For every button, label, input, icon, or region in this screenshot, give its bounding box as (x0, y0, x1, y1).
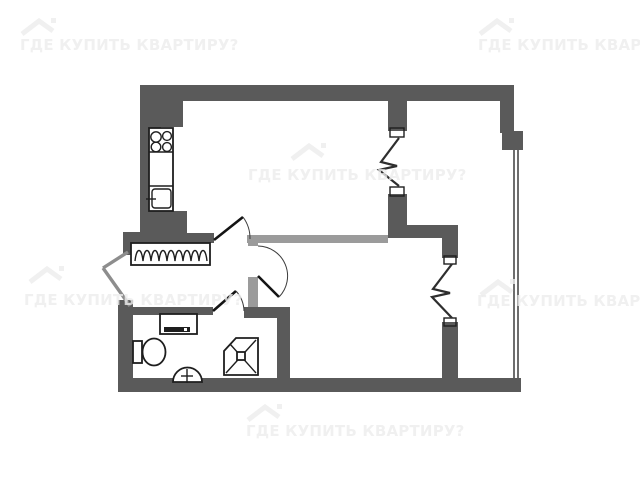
toilet-tank (133, 341, 142, 363)
toilet-icon (133, 339, 166, 366)
coat-rack-icon (131, 243, 210, 265)
accordion-door-icon (432, 264, 452, 318)
floorplan-canvas: ГДЕ КУПИТЬ КВАРТИРУ? ГДЕ КУПИТЬ КВАРТИРУ… (0, 0, 640, 480)
roof-logo-icon (290, 141, 328, 163)
door-leaf (258, 276, 279, 297)
washbasin-icon (173, 368, 202, 384)
wall-segment (118, 300, 133, 392)
washing-machine-icon (160, 314, 197, 334)
shower-cabin-icon (224, 338, 258, 375)
kitchen-door-swing (214, 217, 250, 240)
roof-logo-icon (478, 16, 516, 38)
wall-segment (140, 211, 187, 243)
balcony-accordion-door (432, 256, 456, 326)
toilet-bowl (143, 339, 166, 366)
wall-segment (277, 307, 290, 392)
shower-drain (237, 352, 245, 360)
balcony-glazing (514, 150, 518, 378)
closet-accordion-door (379, 128, 404, 196)
partition-segment (247, 235, 388, 243)
wall-segment (161, 101, 183, 127)
watermark: ГДЕ КУПИТЬ КВАРТИРУ? (246, 423, 465, 439)
partition-segment (248, 243, 258, 246)
wall-segment (140, 85, 514, 101)
walls-partition (247, 235, 388, 307)
entrance-door-leaf (103, 252, 128, 268)
watermark: ГДЕ КУПИТЬ КВАРТИРУ? (478, 37, 640, 53)
kitchen-unit (146, 128, 173, 211)
roof-logo-icon (20, 16, 58, 38)
wall-segment (502, 131, 523, 150)
wall-segment (388, 101, 407, 131)
door-leaf (214, 217, 243, 240)
apartment-floorplan (0, 0, 640, 480)
watermark: ГДЕ КУПИТЬ КВАРТИРУ? (24, 292, 243, 308)
roof-logo-icon (28, 264, 66, 286)
washer-knob (184, 328, 187, 331)
wall-segment (388, 225, 458, 238)
wall-segment (442, 238, 458, 258)
watermark: ГДЕ КУПИТЬ КВАРТИРУ? (20, 37, 239, 53)
wall-segment (500, 85, 514, 133)
bedroom-door-swing (258, 246, 288, 297)
roof-logo-icon (246, 402, 284, 424)
watermark: ГДЕ КУПИТЬ КВАРТИРУ? (477, 293, 640, 309)
watermark: ГДЕ КУПИТЬ КВАРТИРУ? (248, 167, 467, 183)
partition-segment (248, 277, 258, 307)
wall-segment (187, 233, 214, 243)
